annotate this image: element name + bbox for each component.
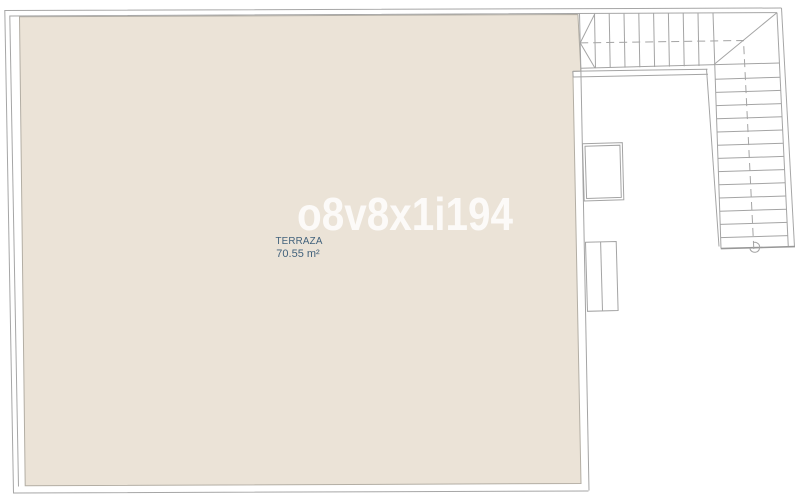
svg-text:o8v8x1i194: o8v8x1i194	[297, 190, 513, 241]
svg-text:70.55 m²: 70.55 m²	[276, 248, 320, 260]
